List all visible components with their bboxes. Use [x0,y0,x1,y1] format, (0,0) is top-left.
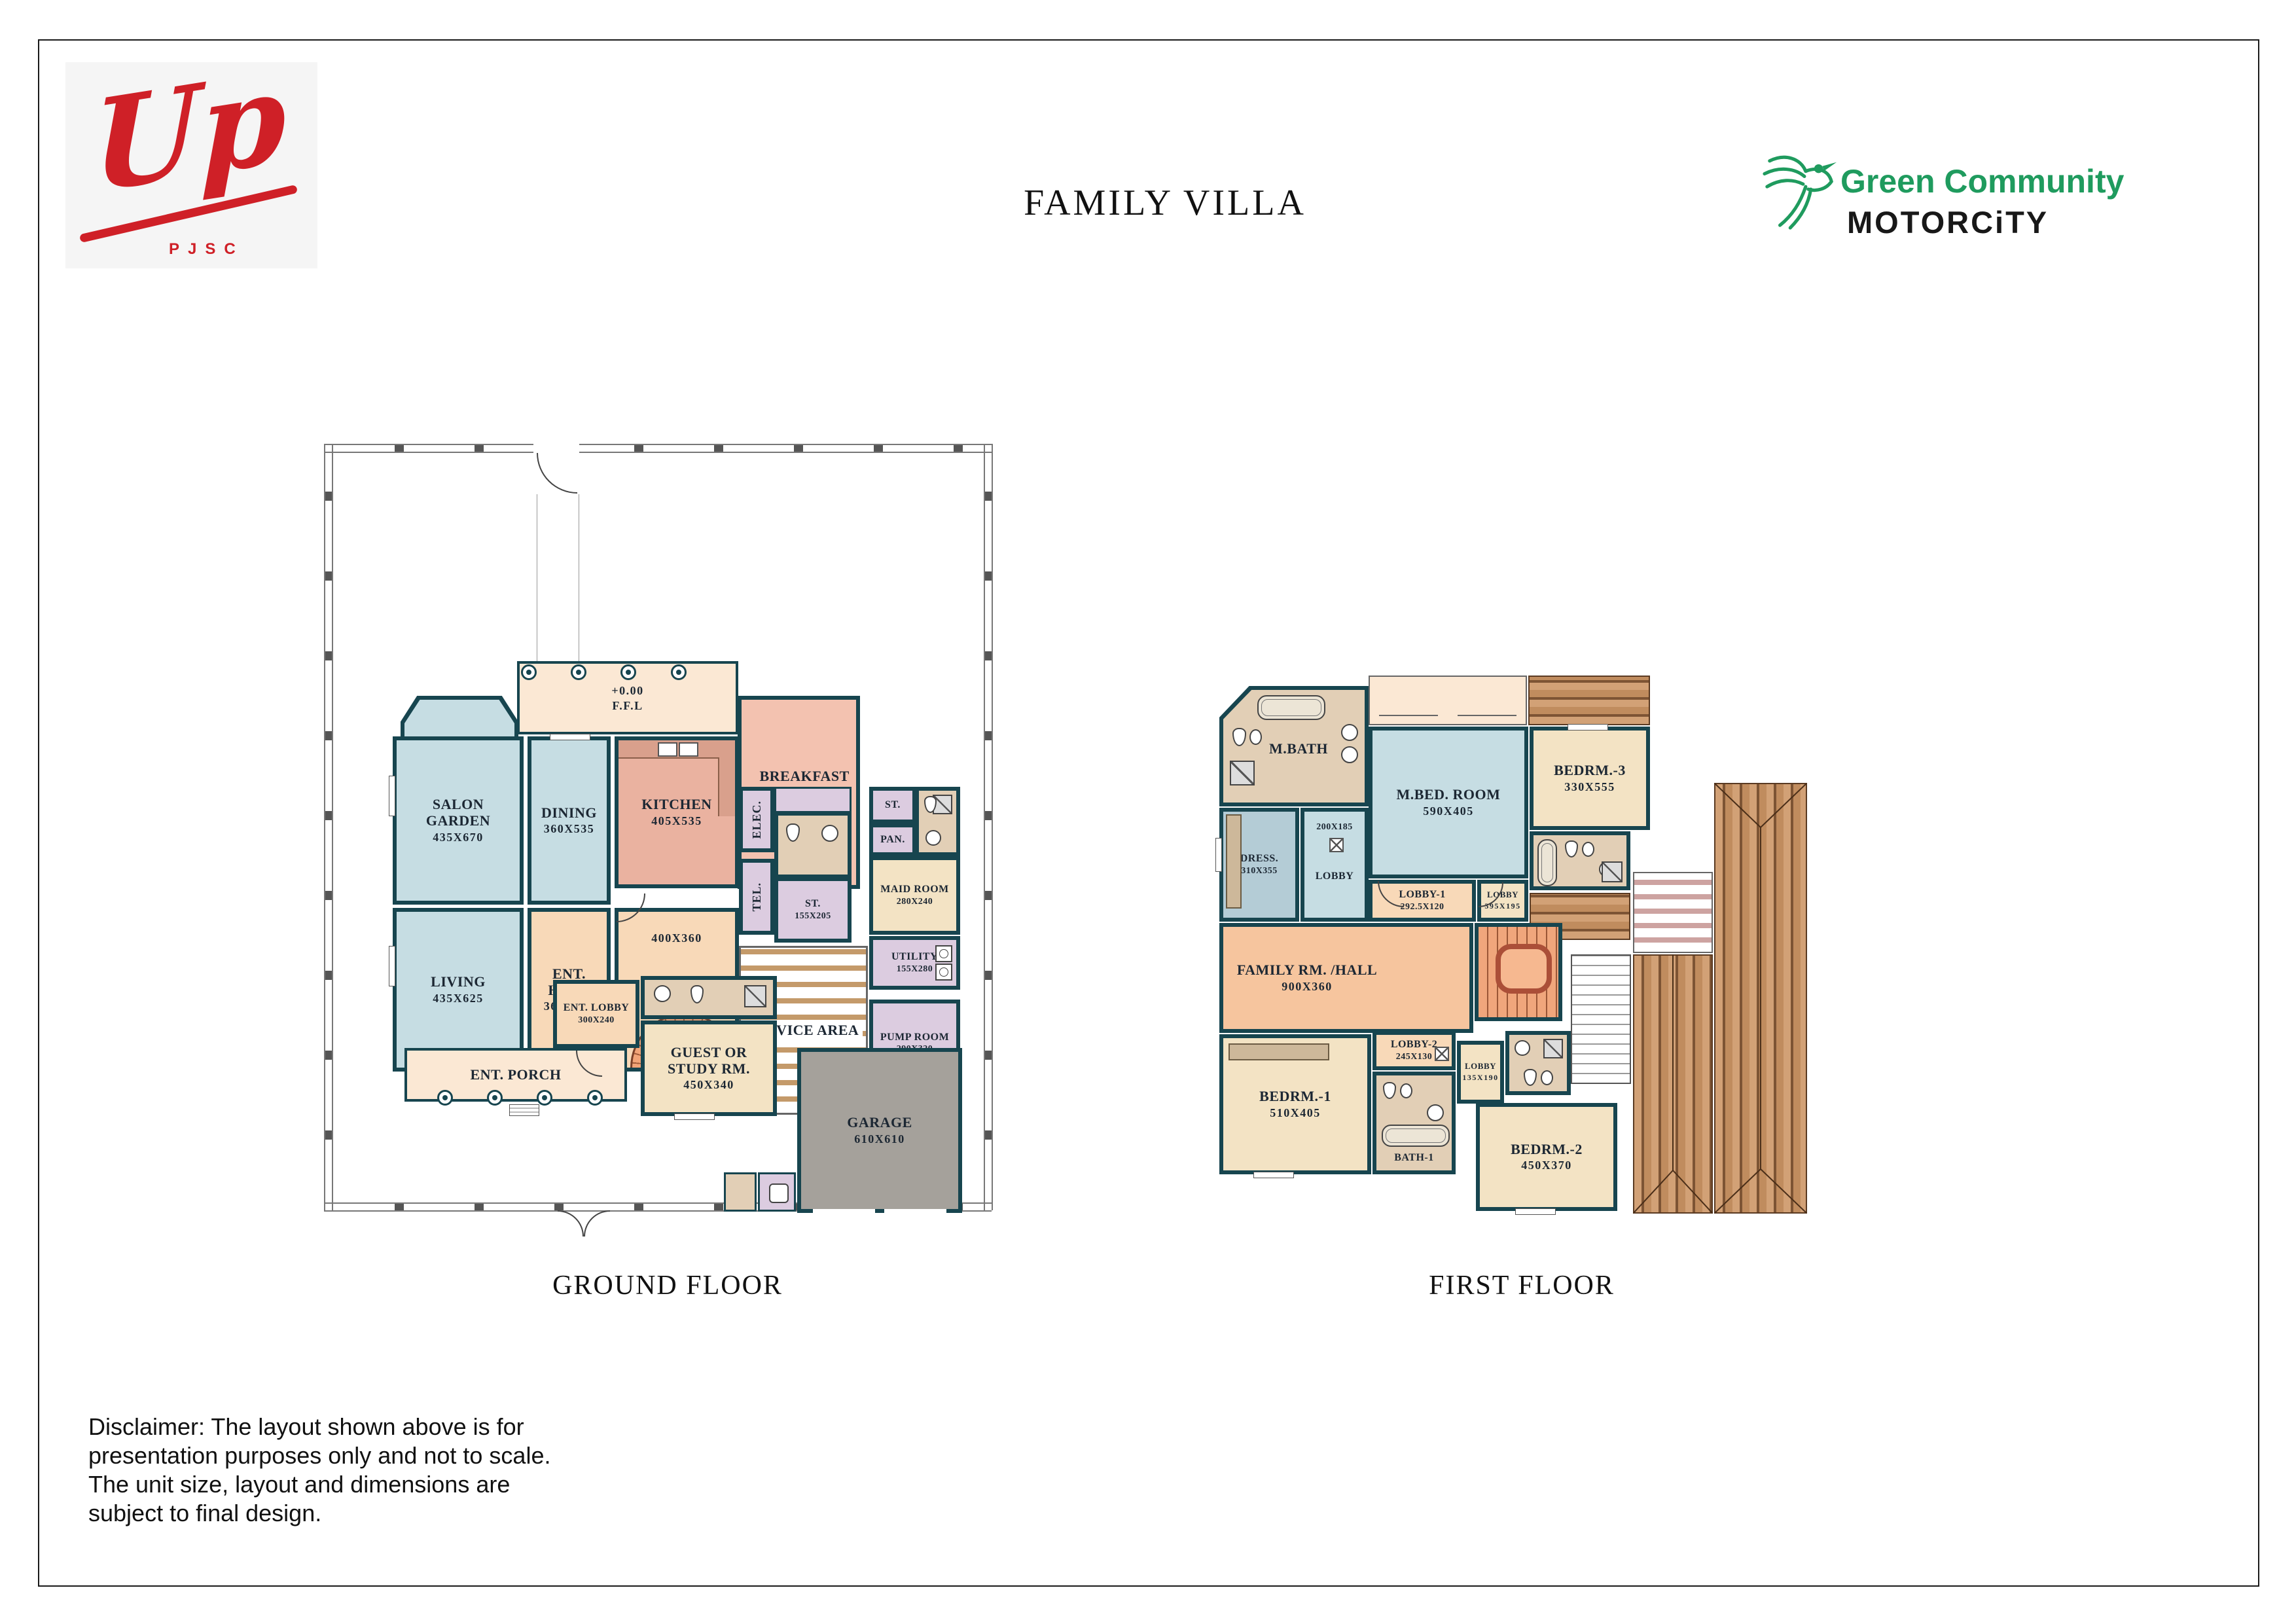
column-icon [671,664,687,680]
window [1215,838,1222,872]
sink-icon [925,830,941,846]
green-community-logo-text: Green Community [1840,162,2124,200]
room-store-1: ST. 155X205 [774,877,852,943]
room-dim: 610X610 [854,1132,905,1146]
room-dim: 330X555 [1564,780,1615,794]
motorcity-logo-text: MOTORCiTY [1847,204,2049,240]
hall-lavender [774,787,852,813]
washer-icon [935,964,952,981]
bath-2 [1505,1031,1571,1095]
room-label: ST. [805,898,821,910]
floorplan-sheet: { "page": { "title": "FAMILY VILLA" }, "… [0,0,2296,1624]
closet-x-icon [1435,1047,1449,1061]
column-icon [437,1090,453,1106]
toilet-icon [1524,1069,1537,1086]
fence-right [984,444,993,1210]
bidet-icon [1400,1083,1412,1098]
disclaimer-text: Disclaimer: The layout shown above is fo… [88,1413,560,1528]
room-lobby-master: 200X185 LOBBY [1300,808,1369,922]
store-tank-room [758,1172,796,1212]
wardrobe [1229,1043,1329,1060]
roof-wing [1633,954,1713,1214]
room-dim: 405X535 [651,814,702,828]
room-label: ELEC. [750,801,764,839]
room-dim: 155X280 [897,964,933,975]
level-mark: +0.00 [611,684,643,698]
room-dim: 510X405 [1270,1106,1321,1120]
bidet-icon [1541,1070,1553,1085]
washer-icon [935,945,952,962]
room-lobby3: LOBBY 135X190 [1457,1041,1504,1104]
room-kitchen: KITCHEN 405X535 [615,736,739,888]
room-maid: MAID ROOM 280X240 [869,856,960,935]
column-icon [487,1090,503,1106]
room-label: DRESS. [1240,853,1279,865]
toilet-icon [1232,728,1246,746]
bathtub-icon [1382,1125,1450,1147]
entry-steps [509,1104,539,1116]
column-icon [587,1090,603,1106]
room-label: DINING [541,805,597,821]
room-tel: TEL. [739,859,774,935]
column-icon [521,664,537,680]
room-utility: UTILITY 155X280 [869,936,960,990]
room-label: PAN. [880,834,905,846]
room-family: FAMILY RM. /HALL 900X360 [1219,923,1473,1033]
roof-patch [1528,676,1650,725]
room-pantry: PAN. [869,823,916,856]
room-label: LOBBY-1 [1399,889,1445,901]
window [389,946,395,986]
toilet-icon [1565,840,1578,857]
room-label: M.BED. ROOM [1397,787,1501,803]
room-dim: 135X190 [1462,1073,1498,1083]
ground-floor-caption: GROUND FLOOR [452,1270,884,1301]
room-dim: 900X360 [1282,980,1333,994]
room-dim: 590X405 [1423,804,1474,818]
bidet-icon [1249,729,1262,745]
toilet-icon [786,823,800,842]
tank-icon [769,1183,789,1203]
first-floor-caption: FIRST FLOOR [1309,1270,1734,1301]
closet-x-icon [1329,838,1344,852]
room-label: TEL. [750,882,764,912]
room-dining: DINING 360X535 [528,736,611,905]
shower-icon [1602,861,1623,882]
shower-icon [1230,761,1255,785]
room-label: LOBBY-2 [1391,1039,1437,1051]
room-dim: 400X360 [651,931,702,945]
sink-icon [821,825,838,842]
wardrobe [1226,814,1242,909]
window [1515,1208,1556,1215]
fence-left [324,444,333,1210]
room-label: GARAGE [847,1115,912,1131]
garage-door-opening [884,1209,946,1213]
sink-icon [1515,1040,1530,1056]
room-salon-garden: SALON GARDEN 435X670 [393,736,524,905]
bathtub-icon [1257,695,1325,720]
stair-newel [1496,944,1552,994]
shower-icon [1543,1039,1563,1058]
kitchen-sink-icon [679,742,698,757]
room-dim: 280X240 [897,897,933,907]
room-dim: 245X130 [1396,1052,1433,1062]
room-dim: 155X205 [795,911,831,922]
room-label: FAMILY RM. /HALL [1237,962,1377,979]
ground-floor-plan: +0.00 F.F.L SALON GARDEN 435X670 DINING … [321,435,1005,1224]
room-dim: 450X370 [1521,1159,1572,1172]
window [1568,724,1608,731]
up-logo-subtext: PJSC [169,240,244,259]
room-dim: 435X625 [433,992,484,1005]
roof-main [1714,783,1807,1214]
room-dim: 300X240 [578,1015,615,1026]
gate-arc [537,453,577,494]
room-label: LOBBY [1316,871,1354,882]
room-label: UTILITY [891,951,938,963]
page-title: FAMILY VILLA [929,182,1401,224]
room-guest: GUEST OR STUDY RM. 450X340 [641,1020,777,1116]
closet-dim: 200X185 [1316,822,1353,833]
external-stair [1571,954,1631,1084]
room-label: LIVING [431,974,486,990]
gate-arc [558,1210,584,1236]
toilet-icon [1383,1082,1396,1099]
room-label: KITCHEN [641,797,711,813]
room-label: GUEST OR STUDY RM. [660,1045,758,1077]
room-label: BATH-1 [1394,1152,1433,1164]
sink-icon [1427,1104,1444,1121]
room-elec: ELEC. [739,787,774,852]
room-label: BEDRM.-3 [1554,763,1626,779]
fence-top [324,444,992,453]
roof-ridges [1714,783,1807,1214]
roof-ridges [1633,954,1713,1214]
sink-icon [1341,724,1358,741]
room-label: ST. [885,799,901,811]
room-label: SALON GARDEN [419,797,497,829]
path-line [579,494,579,661]
salon-bay [404,700,514,740]
level-mark-ffl: F.F.L [612,699,643,713]
room-bedrm1: BEDRM.-1 510X405 [1219,1034,1371,1174]
room-bedrm2: BEDRM.-2 450X370 [1476,1103,1617,1211]
powder-room [774,812,852,878]
bidet-icon [1582,842,1594,857]
room-mbed: M.BED. ROOM 590X405 [1369,727,1528,878]
kitchen-counter [718,757,735,816]
kitchen-sink-icon [658,742,677,757]
room-label: MAID ROOM [880,884,948,895]
maid-bath [915,787,960,856]
room-label: LOBBY [1465,1062,1496,1072]
guest-bath [641,976,777,1019]
room-label: BEDRM.-2 [1511,1142,1583,1158]
room-dim: 292.5X120 [1400,902,1444,912]
window [674,1113,715,1120]
balcony [1369,676,1527,725]
room-ent-lobby: ENT. LOBBY 300X240 [553,980,639,1048]
side-store [724,1172,757,1212]
first-floor-plan: M.BATH M.BED. ROOM 590X405 BEDRM.-3 330X… [1214,674,1836,1227]
window [1253,1172,1294,1178]
room-label: BEDRM.-1 [1259,1089,1331,1105]
room-lobby2: LOBBY-2 245X130 [1372,1031,1456,1070]
balcony-line [1458,715,1516,716]
pergola [1633,872,1713,953]
room-living: LIVING 435X625 [393,908,524,1072]
stair [1475,923,1562,1021]
up-logo: Up PJSC [65,62,317,268]
room-bedrm3: BEDRM.-3 330X555 [1530,727,1650,830]
toilet-icon [691,985,704,1003]
column-icon [571,664,586,680]
garage-door-opening [813,1209,875,1213]
shower-icon [744,985,766,1007]
room-label: PUMP ROOM [880,1032,949,1043]
room-dim: 360X535 [544,822,595,836]
room-garage: GARAGE 610X610 [797,1048,962,1213]
room-label: ENT. PORCH [470,1067,561,1083]
room-label: ENT. LOBBY [564,1002,630,1014]
hummingbird-icon [1762,151,1839,236]
window [389,776,395,816]
column-icon [537,1090,552,1106]
window [550,734,590,740]
path-line [537,494,537,661]
balcony-line [1379,715,1438,716]
sink-icon [654,985,671,1002]
bath-3 [1530,831,1630,890]
gate-opening [533,442,579,453]
sink-icon [1341,746,1358,763]
room-bath1: BATH-1 [1372,1072,1456,1174]
room-label: M.BATH [1269,741,1328,757]
gate-arc [584,1210,610,1236]
column-icon [620,664,636,680]
room-mbath: M.BATH [1223,690,1365,803]
room-store-2: ST. [869,787,916,823]
room-dim: 450X340 [683,1078,734,1092]
room-dim: 435X670 [433,831,484,844]
room-dim: 310X355 [1241,866,1278,876]
room-dress: DRESS. 310X355 [1219,808,1299,922]
bathtub-icon [1537,839,1557,886]
